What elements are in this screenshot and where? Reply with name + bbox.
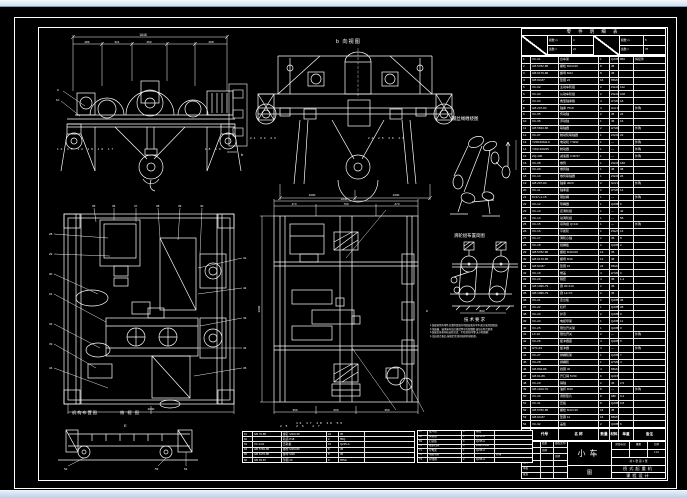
table-cell: 1 xyxy=(599,160,610,166)
organization-line: 课程设计 xyxy=(612,473,665,479)
table-cell: 2 xyxy=(599,85,610,91)
table-cell: HT200 xyxy=(610,188,619,194)
table-cell: 6 xyxy=(522,91,531,97)
table-cell: XC-08 xyxy=(531,160,559,166)
table-cell: XC-07 xyxy=(531,133,559,139)
table-cell: 26 xyxy=(522,229,531,235)
table-row: 33XC-20隔套4451.2 xyxy=(522,277,665,284)
table-cell: GB 6170-86 xyxy=(531,256,559,262)
table-cell: 45 xyxy=(610,64,619,70)
table-cell: 54 xyxy=(522,421,531,427)
table-cell: 48 xyxy=(522,380,531,386)
table-row: 25XC-15吊钩组 Q=10t1—外购 xyxy=(522,222,665,229)
front-view-drawing: 1646 286 321 450 268 9 10 12 13 14 15 16… xyxy=(55,31,245,206)
window-top-edge xyxy=(0,0,687,7)
table-row: 10XC-06浮动轴14516 xyxy=(522,119,665,126)
table-cell: 37 xyxy=(522,305,531,311)
table-cell xyxy=(634,421,665,427)
table-cell xyxy=(495,445,532,449)
table-row: 6XC-03从动车轮组2ZG430-640108 xyxy=(522,91,665,98)
table-cell: 外购 xyxy=(634,332,665,338)
table-cell: 46 xyxy=(619,298,634,304)
table-cell: Q235-A xyxy=(339,442,365,446)
band-half-right: 模数 m5齿数 z78 xyxy=(594,36,666,55)
table-cell: 单重 xyxy=(619,429,634,440)
table-cell: XC-26 xyxy=(531,339,559,345)
table-row: 12XC-07制动轮联轴器1ZG310-57022 xyxy=(522,133,665,140)
plan-left-leaders xyxy=(54,208,242,388)
table-cell: XC-28 xyxy=(531,360,559,366)
table-cell xyxy=(619,256,634,262)
table-cell: 1 xyxy=(599,222,610,228)
table-cell: 名 称 xyxy=(559,429,599,440)
table-cell xyxy=(634,174,665,180)
table-cell: GB 91-86 xyxy=(531,373,559,379)
table-cell: 16 xyxy=(599,415,610,421)
table-row: 齿数 z78 xyxy=(620,46,666,56)
table-cell xyxy=(619,78,634,84)
table-cell: 65Mn xyxy=(339,458,365,462)
table-cell: 定滑轮组 xyxy=(559,208,599,214)
dim-label: 473 xyxy=(394,202,399,206)
dim-label: 700 xyxy=(343,202,348,206)
table-row: 43HT1-63缓冲器4—外购 xyxy=(522,346,665,353)
balloon-label: 37 xyxy=(134,204,138,208)
table-cell: XC-01 xyxy=(531,57,559,63)
table-cell: 4 xyxy=(462,440,475,444)
table-row: 42XC-26缓冲器座4Q235-A5 xyxy=(522,339,665,346)
table-cell: Q235-A xyxy=(610,339,619,345)
table-cell: 1 xyxy=(599,215,610,221)
table-row: 44XC-27排绳轮架1Q235-A7 xyxy=(522,353,665,360)
table-cell: 45 xyxy=(610,256,619,262)
balloon-row: 21 22 23 xyxy=(250,136,278,140)
table-cell: 11 xyxy=(619,318,634,324)
dim-label: 1646 xyxy=(139,33,147,37)
table-cell: 垫圈 24 xyxy=(559,78,599,84)
table-cell: XC-06 xyxy=(531,119,559,125)
table-cell: 卷筒联轴器 xyxy=(559,174,599,180)
table-cell: 41 xyxy=(522,332,531,338)
table-cell: Q235-A xyxy=(475,458,495,462)
table-row: 模数 m5 xyxy=(620,36,666,46)
balloon-label: 34 xyxy=(49,366,53,370)
table-cell: ZG310-570 xyxy=(610,174,619,180)
table-cell: 3 xyxy=(619,270,634,276)
balloon-label: 29 xyxy=(49,252,53,256)
table-cell xyxy=(365,448,414,452)
title-block-info: 阶段标记 重量 比例 1:10 共 1 张 第 1 张 桥式起重机 课程设计 xyxy=(612,442,665,478)
balloon-label: 9 xyxy=(57,88,59,92)
table-cell: Q235-A xyxy=(610,201,619,207)
table-cell: HT200 xyxy=(610,270,619,276)
table-cell xyxy=(634,119,665,125)
table-cell: — xyxy=(610,346,619,352)
table-cell: 1 xyxy=(599,229,610,235)
table-cell: 29 xyxy=(522,250,531,256)
table-row: 13YZR160M2-6电动机 7.5kW1—外购 xyxy=(522,140,665,147)
table-row: 23XC-13定滑轮组1—42 xyxy=(522,208,665,215)
dim-label: 450 xyxy=(146,40,151,44)
table-cell: XC-21 xyxy=(531,298,559,304)
table-cell xyxy=(634,408,665,414)
table-cell: 24 xyxy=(599,263,610,269)
table-row: 24XC-14动滑轮组1—58 xyxy=(522,215,665,222)
table-cell: 2 xyxy=(599,284,610,290)
table-cell xyxy=(554,448,566,453)
table-cell: GB 5783-86 xyxy=(531,408,559,414)
table-cell: 16 xyxy=(619,119,634,125)
table-cell: 8 xyxy=(599,64,610,70)
table-row: 18XC-10卷筒联轴器1ZG310-57026 xyxy=(522,174,665,181)
table-cell: 从动车轮组 xyxy=(559,91,599,97)
table-cell: 4 xyxy=(462,431,475,435)
table-cell: 1 xyxy=(599,318,610,324)
table-cell: ZG270-500 xyxy=(610,229,619,235)
table-cell xyxy=(541,467,554,472)
balloon-label: 10 xyxy=(56,98,60,102)
table-cell: — xyxy=(610,222,619,228)
table-cell: GB 1096-79 xyxy=(531,291,559,297)
table-cell: 2.5 xyxy=(619,380,634,386)
table-row: 51XC-31压板8Q235-A0.8 xyxy=(522,401,665,408)
table-cell: 缓冲器 xyxy=(428,431,462,435)
plan-view-left-drawing: 28 29 30 31 32 33 34 35 36 37 38 39 40 4… xyxy=(48,198,248,420)
table-cell: 17 xyxy=(522,167,531,173)
table-cell: ZG270-500 xyxy=(475,445,495,449)
table-cell: 垫圈 12 xyxy=(559,415,599,421)
table-cell: Q235-A xyxy=(610,305,619,311)
table-cell: 端盖 xyxy=(559,270,599,276)
table-cell: 860 xyxy=(619,57,634,63)
table-cell: 8 xyxy=(599,387,610,393)
table-cell: 39 xyxy=(522,318,531,324)
table-cell: 45 xyxy=(610,119,619,125)
table-cell: 螺钉 M10×30 xyxy=(282,432,327,436)
table-cell: 6 xyxy=(619,421,634,427)
table-cell: XC-09 xyxy=(531,167,559,173)
info-cell: 重量 xyxy=(630,442,648,449)
table-cell: 4 xyxy=(599,277,610,283)
table-cell: 2 xyxy=(599,243,610,249)
parts-list-rows: 1XC-01台车架1Q235-A860焊接件2GB 5782-86螺栓 M24×… xyxy=(521,56,666,428)
table-cell: 108 xyxy=(619,91,634,97)
table-row: 齿数 z21 xyxy=(548,46,593,56)
table-cell: 45 xyxy=(522,360,531,366)
table-cell: 2 xyxy=(599,91,610,97)
table-cell: GB 70-85 xyxy=(253,432,282,436)
table-cell: 22 xyxy=(522,201,531,207)
table-cell xyxy=(619,146,634,152)
diagonal-header-cell xyxy=(594,36,620,55)
table-cell: 导绳器 xyxy=(559,201,599,207)
table-cell xyxy=(634,71,665,77)
table-cell xyxy=(541,454,554,459)
table-cell: 73 xyxy=(418,458,428,462)
table-row: 48XC-29销轴2452.5 xyxy=(522,380,665,387)
table-cell: 70 xyxy=(418,445,428,449)
table-cell: 45 xyxy=(610,291,619,297)
table-cell: 71 xyxy=(418,449,428,453)
table-cell: 7 xyxy=(522,98,531,104)
table-cell xyxy=(619,222,634,228)
table-row: 37XC-22栏杆1Q235-A28 xyxy=(522,305,665,312)
table-cell: 45 xyxy=(610,250,619,256)
table-cell: XC-3-01 xyxy=(253,442,282,446)
balloon-label: 40 xyxy=(200,204,204,208)
table-cell: 42 xyxy=(522,339,531,345)
view-marker: c xyxy=(426,308,428,313)
table-cell xyxy=(365,458,414,462)
table-cell xyxy=(634,360,665,366)
table-cell: GB 5843-86 xyxy=(531,126,559,132)
table-cell: 螺母 M24 xyxy=(559,71,599,77)
table-cell: 螺栓 M12×30 xyxy=(559,408,599,414)
table-cell: 16 xyxy=(599,78,610,84)
table-cell: 08F xyxy=(610,394,619,400)
table-cell: 外购 xyxy=(634,140,665,146)
table-cell xyxy=(619,284,634,290)
table-cell: 钢丝绳 xyxy=(559,195,599,201)
table-cell: 外购 xyxy=(495,454,532,458)
table-cell: 18 xyxy=(619,98,634,104)
table-cell: Q235-A xyxy=(610,353,619,359)
table-cell: Q235-A xyxy=(610,243,619,249)
table-cell: 45 xyxy=(610,284,619,290)
table-cell: 压板 xyxy=(559,401,599,407)
table-cell: 0.8 xyxy=(619,401,634,407)
table-cell xyxy=(475,454,495,458)
table-cell: XC-20 xyxy=(531,277,559,283)
table-cell: Q235-A xyxy=(475,436,495,440)
table-row: 31GB 93-87垫圈 162465Mn xyxy=(522,263,665,270)
table-cell: XC-02 xyxy=(531,85,559,91)
sheet-count: 共 1 张 第 1 张 xyxy=(612,458,665,466)
table-row: 16XC-08卷筒1ZG310-570186 xyxy=(522,160,665,167)
info-cell: 比例 xyxy=(648,442,665,449)
table-cell: 压轨板 xyxy=(282,442,327,446)
table-row: 22XC-12导绳器1Q235-A6 xyxy=(522,201,665,208)
table-cell xyxy=(634,208,665,214)
table-cell xyxy=(634,298,665,304)
table-cell: 9 xyxy=(619,311,634,317)
table-cell: 45 xyxy=(610,277,619,283)
table-cell: 31 xyxy=(522,263,531,269)
dim-label: 2000 xyxy=(257,305,261,312)
table-cell: 78 xyxy=(644,46,666,55)
table-cell: 8 xyxy=(327,458,339,462)
table-cell: XC-23 xyxy=(531,311,559,317)
table-cell: 1 xyxy=(462,449,475,453)
table-cell xyxy=(634,133,665,139)
balloon-label: 39 xyxy=(178,204,182,208)
balloon-label: 43 xyxy=(243,316,247,320)
pulley-arrangement-detail: 滑轮组布置简图 800 xyxy=(440,230,520,318)
table-cell: 65Mn xyxy=(610,415,619,421)
front-view-machinery xyxy=(61,81,241,171)
table-cell: — xyxy=(610,208,619,214)
table-row: 73护线槽2Q235-A xyxy=(418,458,532,462)
table-cell: 12 xyxy=(619,229,634,235)
table-cell: 2 xyxy=(522,64,531,70)
table-cell xyxy=(619,415,634,421)
table-cell: GB 5782-86 xyxy=(531,250,559,256)
table-cell xyxy=(619,153,634,159)
table-cell: 浮动轴 xyxy=(559,119,599,125)
table-cell: 24 xyxy=(522,215,531,221)
table-cell xyxy=(634,318,665,324)
table-cell: 49 xyxy=(522,387,531,393)
table-cell: 1 xyxy=(599,119,610,125)
table-cell: 4 xyxy=(599,98,610,104)
view-marker: b xyxy=(241,152,244,157)
table-cell xyxy=(634,256,665,262)
table-cell: XC-14 xyxy=(531,215,559,221)
front-view-leaders xyxy=(61,91,85,116)
table-cell xyxy=(619,195,634,201)
table-cell xyxy=(634,215,665,221)
table-cell: 垫圈 16 xyxy=(559,263,599,269)
table-cell xyxy=(634,366,665,372)
table-cell: 挡绳板 xyxy=(559,243,599,249)
table-cell: 2 xyxy=(599,380,610,386)
table-cell: 批准 xyxy=(522,473,541,478)
table-cell: ZQ-400 xyxy=(531,153,559,159)
table-cell: 11 xyxy=(522,126,531,132)
view-label: b 向视图 xyxy=(336,37,361,45)
table-cell xyxy=(619,140,634,146)
table-cell: 15 xyxy=(522,153,531,159)
table-cell: 传动轴 xyxy=(559,112,599,118)
table-cell: 8 xyxy=(327,448,339,452)
table-cell: 0.2 xyxy=(619,394,634,400)
table-cell: GB 5782-86 xyxy=(253,448,282,452)
table-cell: XC-18 xyxy=(531,243,559,249)
table-row: 45XC-28排绳轮1HT2004 xyxy=(522,360,665,367)
table-cell: 45 xyxy=(610,167,619,173)
table-cell xyxy=(619,126,634,132)
table-cell: GB 93-87 xyxy=(531,78,559,84)
table-cell: 8 xyxy=(619,236,634,242)
cad-viewer-window: 1646 286 321 450 268 9 10 12 13 14 15 16… xyxy=(0,0,687,498)
table-cell: 43 xyxy=(522,346,531,352)
table-cell xyxy=(634,112,665,118)
table-cell: 数量 xyxy=(599,429,610,440)
table-cell xyxy=(495,436,532,440)
table-cell: 销轴 xyxy=(559,380,599,386)
table-cell xyxy=(495,449,532,453)
table-cell: 2 xyxy=(599,188,610,194)
table-cell: 审核 xyxy=(522,467,541,472)
table-cell xyxy=(634,236,665,242)
table-cell xyxy=(634,160,665,166)
table-row: 47GB 91-86开口销 5×506Q215 xyxy=(522,373,665,380)
table-cell: 27 xyxy=(522,236,531,242)
table-cell: 46 xyxy=(522,366,531,372)
dim-label: 286 xyxy=(84,40,89,44)
table-cell: 3 xyxy=(522,71,531,77)
info-cell xyxy=(612,450,630,457)
parts-list-parameter-band: 模数 m4齿数 z21 模数 m5齿数 z78 xyxy=(521,35,666,56)
rope-reeving-detail: 钢丝绳缠绕图 xyxy=(438,112,520,230)
side-view-beam xyxy=(256,94,454,126)
table-cell: Q235-A xyxy=(475,449,495,453)
table-cell: 12 xyxy=(599,256,610,262)
table-cell: 2 xyxy=(599,126,610,132)
table-cell xyxy=(634,250,665,256)
table-cell: — xyxy=(610,332,619,338)
table-cell: 电缆卷筒 xyxy=(428,454,462,458)
table-cell xyxy=(365,437,414,441)
table-cell: 16 xyxy=(599,408,610,414)
table-cell: 螺栓 M16×60 xyxy=(559,250,599,256)
table-cell: 24 xyxy=(327,432,339,436)
table-row: 38XC-23护罩2Q235-A9 xyxy=(522,311,665,318)
table-cell: 缓冲器座 xyxy=(559,339,599,345)
table-cell: 橡胶 xyxy=(475,431,495,435)
table-cell: 2 xyxy=(619,243,634,249)
table-cell: 35 xyxy=(339,432,365,436)
table-cell: 69 xyxy=(418,440,428,444)
balloon-label: 28 xyxy=(49,232,53,236)
balloon-label: 36 xyxy=(112,204,116,208)
table-cell xyxy=(634,243,665,249)
table-row: 66GB 93-87垫圈 20865Mn xyxy=(243,458,414,462)
table-cell: 45 xyxy=(610,112,619,118)
table-cell: 35 xyxy=(522,291,531,297)
balloon-row: 24 25 26 27 xyxy=(368,136,406,140)
table-cell: XC-25 xyxy=(531,325,559,331)
table-cell: — xyxy=(610,146,619,152)
table-cell xyxy=(634,263,665,269)
table-cell: 64 xyxy=(243,448,253,452)
diagonal-header-cell xyxy=(522,36,548,55)
table-cell xyxy=(634,339,665,345)
table-cell: 66 xyxy=(243,458,253,462)
table-cell: 55Q xyxy=(339,437,365,441)
table-cell: 8 xyxy=(599,71,610,77)
table-cell: 2 xyxy=(327,437,339,441)
table-cell: 38 xyxy=(522,311,531,317)
info-grid-row: 1:10 xyxy=(612,450,665,458)
table-cell: XC-29 xyxy=(531,380,559,386)
table-cell: 螺栓 M24×90 xyxy=(559,64,599,70)
table-cell: 14 xyxy=(522,146,531,152)
table-cell: 挡圈 40 xyxy=(559,366,599,372)
balloon-label: 54 xyxy=(184,467,188,471)
table-cell: 16 xyxy=(327,442,339,446)
table-row: 7XC-04角型轴承箱4HT20018 xyxy=(522,98,665,105)
dim-label: 800 xyxy=(479,309,484,313)
table-cell xyxy=(619,346,634,352)
table-cell xyxy=(634,201,665,207)
table-cell: 焊接件 xyxy=(634,57,665,63)
table-cell: 1 xyxy=(599,360,610,366)
table-cell: 1 xyxy=(599,133,610,139)
table-cell xyxy=(541,461,554,466)
table-cell: 67 xyxy=(418,431,428,435)
title-block: 标记处数更改文件号签字日期设计日期校对审核批准 小车 图 阶段标记 重量 比例 … xyxy=(521,441,666,479)
table-cell: 16 xyxy=(522,160,531,166)
table-cell: 2 xyxy=(599,298,610,304)
table-row: 27XC-17滑轮心轴2458 xyxy=(522,236,665,243)
table-cell: 2 xyxy=(599,236,610,242)
table-row: 20XC-11轴承座2HT20014 xyxy=(522,188,665,195)
table-cell: 调整垫片 xyxy=(559,394,599,400)
info-cell xyxy=(630,450,648,457)
table-cell: XC-04 xyxy=(531,98,559,104)
table-cell: HT200 xyxy=(610,360,619,366)
